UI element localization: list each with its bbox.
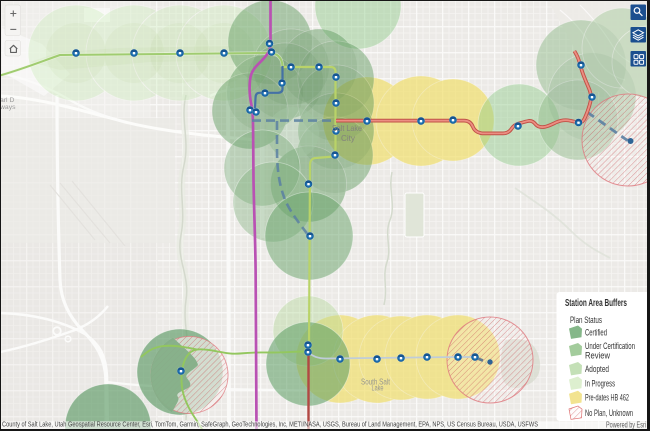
svg-text:No Plan, Unknown: No Plan, Unknown	[585, 408, 633, 418]
svg-text:Certified: Certified	[585, 328, 607, 338]
svg-text:Station Area Buffers: Station Area Buffers	[565, 298, 627, 309]
svg-text:Adopted: Adopted	[585, 364, 609, 374]
svg-text:Powered by Esri: Powered by Esri	[606, 420, 646, 429]
svg-text:Pre-dates HB 462: Pre-dates HB 462	[585, 393, 629, 403]
svg-text:Plan Status: Plan Status	[570, 314, 602, 325]
svg-text:arl D: arl D	[1, 97, 14, 104]
svg-text:Review: Review	[585, 350, 610, 360]
svg-text:ways: ways	[1, 104, 16, 111]
svg-text:Salt Lake: Salt Lake	[332, 123, 362, 133]
svg-text:Under Certification: Under Certification	[585, 341, 635, 351]
svg-text:City: City	[341, 133, 356, 143]
svg-text:County of Salt Lake, Utah Geos: County of Salt Lake, Utah Geospatial Res…	[2, 422, 538, 429]
svg-text:In Progress: In Progress	[585, 378, 615, 388]
svg-text:Lake: Lake	[372, 384, 384, 393]
